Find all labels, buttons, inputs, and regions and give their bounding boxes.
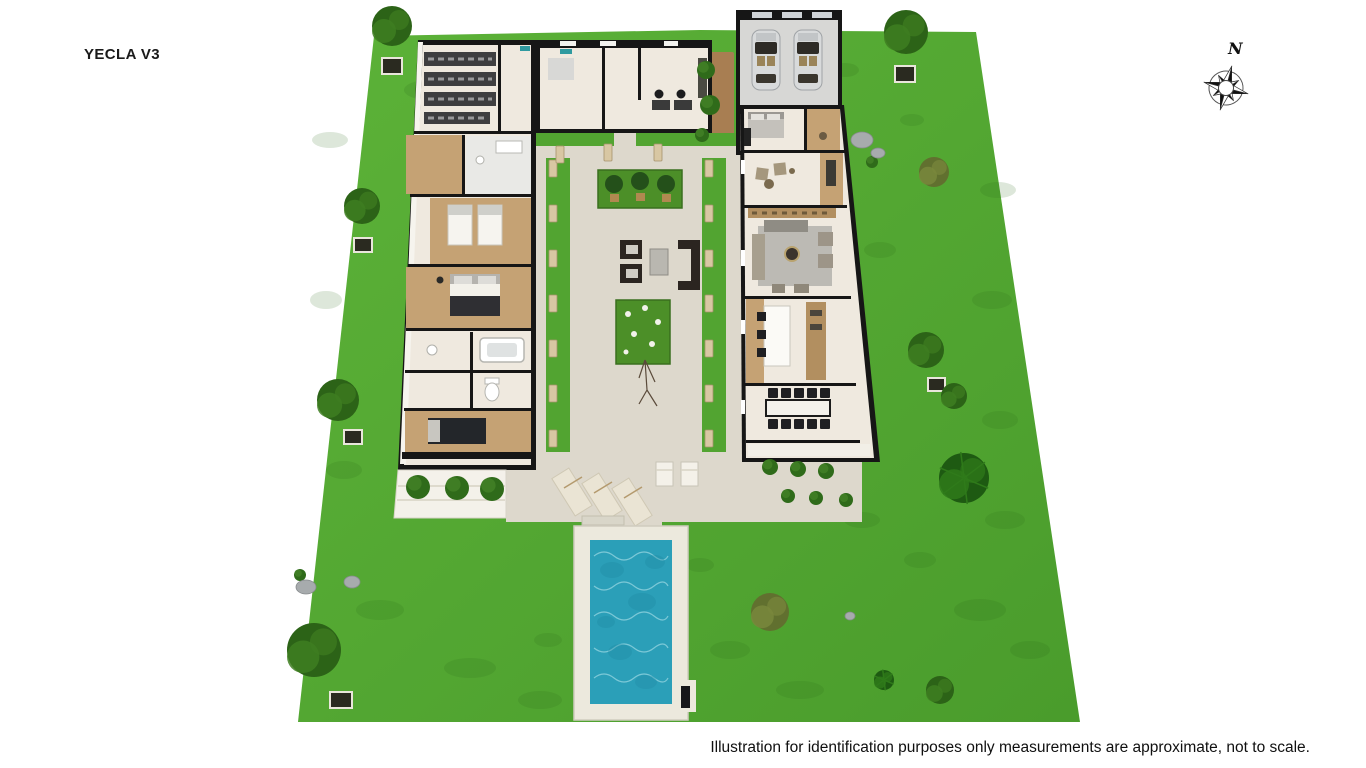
compass-rose: N	[1192, 36, 1262, 120]
lawn-patch	[518, 691, 562, 709]
stone-pillar	[549, 385, 557, 402]
lawn-patch	[904, 552, 936, 568]
rock	[344, 576, 360, 588]
tree	[919, 157, 949, 187]
planter-top	[598, 170, 682, 208]
bush	[839, 493, 853, 507]
garage	[736, 10, 842, 110]
compass-north-label: N	[1227, 39, 1244, 58]
rock	[845, 612, 855, 620]
rock	[871, 148, 885, 158]
bush	[762, 459, 778, 475]
compass-star	[1198, 60, 1254, 116]
stone-pillar	[549, 250, 557, 267]
stone-pillar	[549, 340, 557, 357]
stone-pillar	[604, 144, 612, 161]
lawn-patch	[982, 411, 1018, 429]
tree	[941, 383, 967, 409]
stone-pillar	[705, 295, 713, 312]
site-plan-svg	[0, 0, 1366, 768]
bush	[781, 489, 795, 503]
tree-planter	[382, 58, 402, 74]
bush	[480, 477, 504, 501]
lawn-patch	[900, 114, 924, 126]
bush	[818, 463, 834, 479]
top-wing	[536, 40, 712, 133]
bush	[790, 461, 806, 477]
car	[794, 30, 822, 90]
stone-pillar	[549, 205, 557, 222]
stone-pillar	[549, 430, 557, 447]
tree-planter	[344, 430, 362, 444]
lawn-patch	[312, 132, 348, 148]
bush	[700, 95, 720, 115]
stone-pillar	[705, 385, 713, 402]
lawn-patch	[980, 182, 1016, 198]
stone-pillar	[705, 340, 713, 357]
lawn-patch	[1010, 641, 1050, 659]
stone-pillar	[705, 430, 713, 447]
site-plan	[0, 0, 1366, 768]
lawn-patch	[686, 558, 714, 572]
car	[752, 30, 780, 90]
stone-pillar	[549, 295, 557, 312]
bush	[406, 475, 430, 499]
lawn-patch	[356, 600, 404, 620]
bush	[809, 491, 823, 505]
tree	[926, 676, 954, 704]
lawn-patch	[972, 291, 1012, 309]
tree-planter	[330, 692, 352, 708]
tree-planter	[895, 66, 915, 82]
lawn-patch	[310, 291, 342, 309]
swimming-pool	[574, 516, 696, 720]
tree-planter	[928, 378, 945, 391]
disclaimer-text: Illustration for identification purposes…	[710, 739, 1310, 757]
rock	[851, 132, 873, 148]
stone-pillar	[556, 146, 564, 163]
lawn-patch	[710, 641, 750, 659]
tree-planter	[354, 238, 372, 252]
left-wing	[394, 40, 536, 518]
bush	[695, 128, 709, 142]
tree	[751, 593, 789, 631]
lawn-patch	[326, 461, 362, 479]
bush	[445, 476, 469, 500]
lawn-patch	[534, 633, 562, 647]
stone-pillar	[654, 144, 662, 161]
bush	[697, 61, 715, 79]
lawn-patch	[954, 599, 1006, 621]
stone-pillar	[705, 205, 713, 222]
stone-pillar	[705, 160, 713, 177]
lawn-patch	[985, 511, 1025, 529]
lawn-patch	[444, 658, 496, 678]
stone-pillar	[705, 250, 713, 267]
rock	[296, 580, 316, 594]
bush	[294, 569, 306, 581]
lawn-patch	[776, 681, 824, 699]
lawn-patch	[864, 242, 896, 258]
